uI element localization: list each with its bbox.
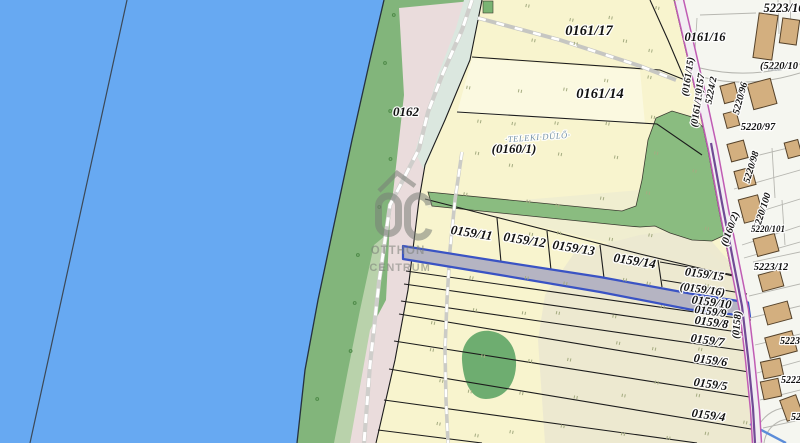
svg-text:(0160/1): (0160/1) [492, 141, 537, 156]
svg-text:0161/17: 0161/17 [565, 23, 613, 39]
svg-text:meder: meder [768, 67, 783, 73]
svg-text:5223/12: 5223/12 [754, 262, 789, 273]
svg-text:OTTHON: OTTHON [371, 245, 426, 257]
svg-text:52: 52 [791, 412, 800, 423]
svg-text:0161/14: 0161/14 [576, 86, 624, 102]
svg-text:5220/101: 5220/101 [751, 224, 785, 234]
svg-text:5220/97: 5220/97 [741, 122, 776, 133]
svg-text:5222: 5222 [781, 375, 800, 386]
svg-text:0162: 0162 [393, 104, 420, 119]
svg-text:0161/16: 0161/16 [685, 30, 727, 44]
svg-text:5223: 5223 [780, 336, 800, 347]
svg-text:CENTRUM: CENTRUM [369, 262, 430, 274]
svg-text:5223/16: 5223/16 [764, 1, 800, 15]
